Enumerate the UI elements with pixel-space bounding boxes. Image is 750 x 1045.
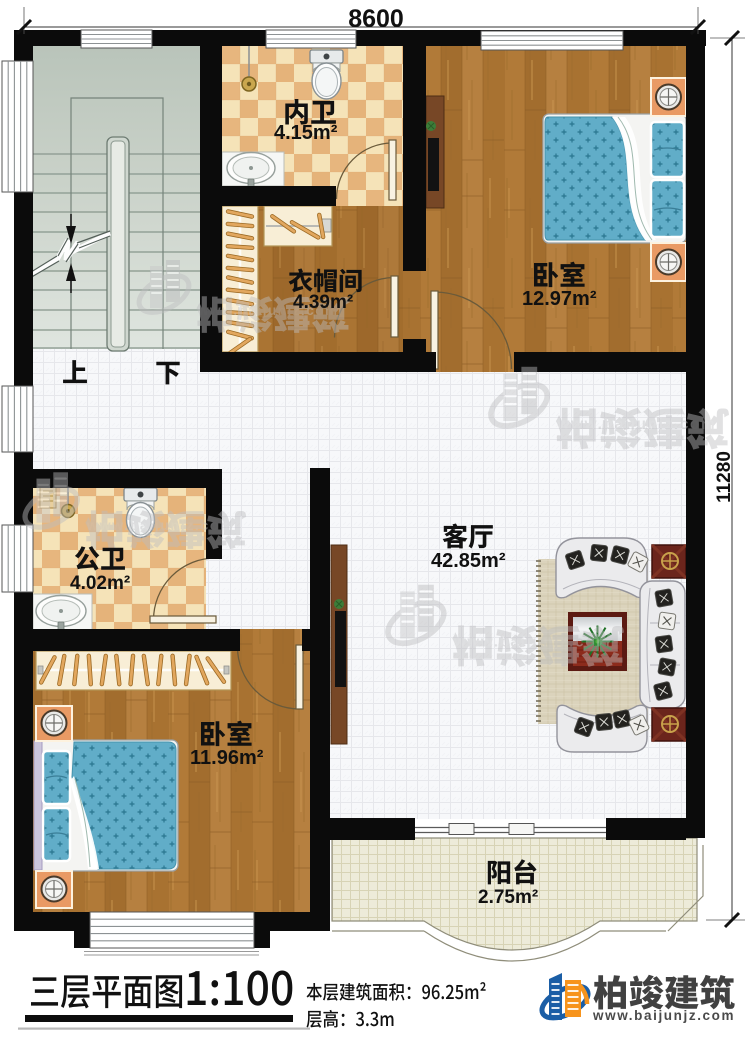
svg-text:4.39m²: 4.39m²: [293, 292, 353, 313]
svg-text:8600: 8600: [348, 5, 404, 33]
svg-text:2.75m²: 2.75m²: [478, 887, 538, 908]
svg-text:11.96m²: 11.96m²: [190, 747, 264, 769]
svg-text:www.baijunjz.com: www.baijunjz.com: [86, 518, 234, 534]
svg-text:4.15m²: 4.15m²: [274, 122, 338, 144]
svg-text:42.85m²: 42.85m²: [431, 550, 506, 572]
svg-text:11280: 11280: [714, 451, 735, 503]
svg-text:www.baijunjz.com: www.baijunjz.com: [453, 633, 611, 650]
svg-text:4.02m²: 4.02m²: [70, 573, 130, 594]
svg-text:12.97m²: 12.97m²: [522, 288, 597, 310]
svg-text:www.baijunjz.com: www.baijunjz.com: [592, 1008, 735, 1023]
svg-text:www.baijunjz.com: www.baijunjz.com: [557, 416, 717, 433]
